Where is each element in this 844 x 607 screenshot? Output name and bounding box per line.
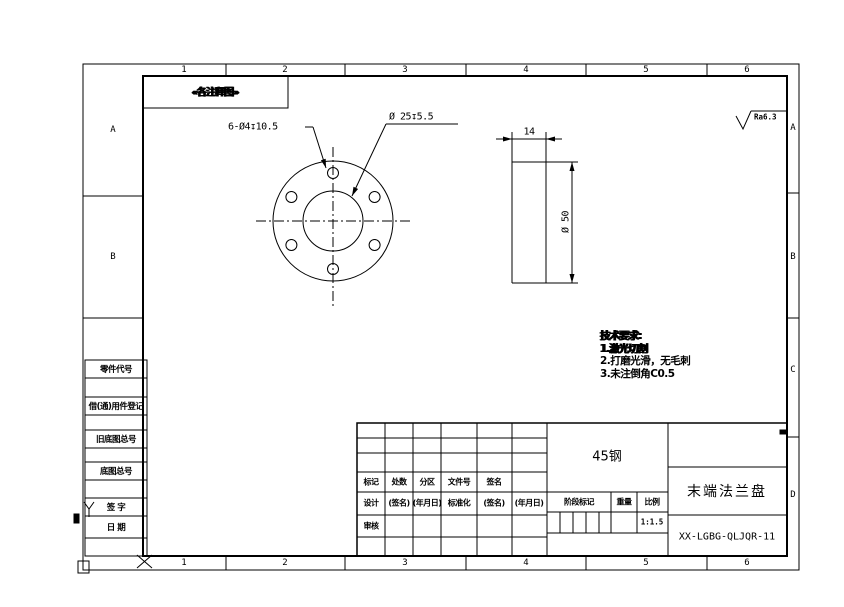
holes-leader bbox=[305, 127, 326, 168]
titleblock-standardization-label: 标准化 bbox=[448, 498, 471, 509]
titleblock-date-label: (年月日) bbox=[413, 498, 442, 509]
zone-number-top-2: 2 bbox=[282, 65, 287, 75]
bore-dimension-label: Ø 25↧5.5 bbox=[389, 112, 433, 123]
width-dimension-label: 14 bbox=[523, 127, 534, 138]
zone-letter-left-a: A bbox=[110, 125, 115, 135]
front-view bbox=[256, 124, 458, 307]
zone-number-top-4: 4 bbox=[523, 65, 528, 75]
zone-number-top-6: 6 bbox=[744, 65, 749, 75]
titleblock-date2-label: (年月日) bbox=[515, 498, 544, 509]
zone-number-top-5: 5 bbox=[643, 65, 648, 75]
tech-requirements: 技术要求: 1.激光切割 2.打磨光滑，无毛刺 3.未注倒角C0.5 bbox=[600, 330, 690, 380]
tech-requirement-2: 2.打磨光滑，无毛刺 bbox=[600, 355, 690, 368]
tech-requirement-1: 1.激光切割 bbox=[600, 343, 690, 356]
zone-number-bottom-1: 1 bbox=[181, 558, 186, 568]
tech-requirement-3: 3.未注倒角C0.5 bbox=[600, 368, 690, 381]
zone-letter-right-b: B bbox=[790, 252, 795, 262]
block-date-label: 日 期 bbox=[107, 521, 125, 533]
part-name: 末端法兰盘 bbox=[687, 481, 767, 501]
weight-label: 重量 bbox=[617, 497, 632, 508]
block-old-master-no-label: 旧底图总号 bbox=[96, 433, 136, 445]
titleblock-audit-label: 审核 bbox=[364, 521, 379, 532]
block-part-code-label: 零件代号 bbox=[100, 363, 132, 375]
block-signature-label: 签 字 bbox=[107, 501, 125, 513]
titleblock-docno-label: 文件号 bbox=[448, 477, 471, 488]
tech-requirements-title: 技术要求: bbox=[600, 330, 690, 343]
diameter-dimension-label: Ø 50 bbox=[561, 211, 572, 233]
zone-number-top-3: 3 bbox=[402, 65, 407, 75]
side-view bbox=[496, 132, 578, 283]
block-master-no-label: 底图总号 bbox=[100, 465, 132, 477]
surface-roughness-value: Ra6.3 bbox=[754, 113, 777, 122]
annotation-box-text: «各注释图» bbox=[192, 84, 239, 99]
stage-mark-label: 阶段标记 bbox=[564, 497, 594, 508]
cad-drawing-sheet: 1 2 3 4 5 6 1 2 3 4 5 6 A B A B C D «各注释… bbox=[0, 0, 844, 607]
zone-letter-right-a: A bbox=[790, 123, 795, 133]
titleblock-signname2-label: (签名) bbox=[483, 498, 504, 509]
titleblock-signname-label: (签名) bbox=[388, 498, 409, 509]
zone-number-bottom-5: 5 bbox=[643, 558, 648, 568]
drawing-linework bbox=[0, 0, 844, 607]
drawing-number: XX-LGBG-QLJQR-11 bbox=[679, 532, 775, 543]
titleblock-mark-label: 标记 bbox=[364, 477, 379, 488]
titleblock-zone-label: 分区 bbox=[420, 477, 435, 488]
zone-number-bottom-4: 4 bbox=[523, 558, 528, 568]
zone-number-bottom-3: 3 bbox=[402, 558, 407, 568]
zone-number-bottom-6: 6 bbox=[744, 558, 749, 568]
zone-number-bottom-2: 2 bbox=[282, 558, 287, 568]
center-lines bbox=[256, 147, 411, 307]
bore-leader bbox=[352, 124, 458, 196]
titleblock-count-label: 处数 bbox=[392, 477, 407, 488]
zone-letter-right-c: C bbox=[790, 365, 795, 375]
material-value: 45钢 bbox=[592, 446, 622, 465]
titleblock-design-label: 设计 bbox=[364, 498, 379, 509]
zone-number-top-1: 1 bbox=[181, 65, 186, 75]
zone-letter-right-d: D bbox=[790, 490, 795, 500]
zone-letter-left-b: B bbox=[110, 252, 115, 262]
scale-value: 1:1.5 bbox=[641, 518, 664, 527]
holes-dimension-label: 6-Ø4↧10.5 bbox=[228, 122, 278, 133]
scale-label: 比例 bbox=[645, 497, 660, 508]
block-borrowed-parts-label: 借(通)用件登记 bbox=[89, 400, 144, 412]
titleblock-sign-label: 签名 bbox=[487, 477, 502, 488]
